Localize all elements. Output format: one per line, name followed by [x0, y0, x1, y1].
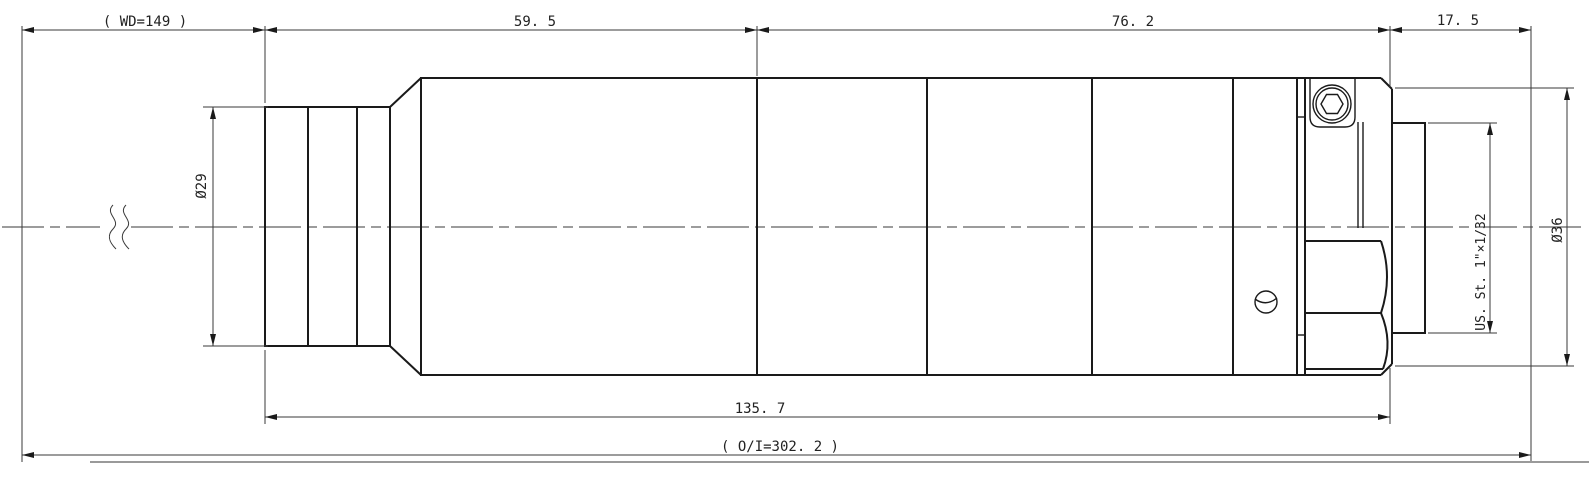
dimension-section-a: 59. 5	[265, 14, 757, 30]
dimension-flange-distance: 17. 5	[1390, 13, 1531, 30]
lens-dimension-drawing: ( WD=149 ) 59. 5 76. 2 17. 5 Ø29 Ø36	[0, 0, 1589, 482]
dimension-object-to-image: ( O/I=302. 2 )	[22, 439, 1531, 455]
taper-bottom-edge	[390, 346, 421, 375]
optical-centerline	[2, 205, 1585, 249]
body-length-label: 135. 7	[735, 401, 786, 417]
break-symbol	[109, 205, 129, 249]
mount-thread-label: US. St. 1"×1/32	[1474, 213, 1489, 330]
taper-top-edge	[390, 78, 421, 107]
hex-socket	[1321, 95, 1343, 114]
front-diameter-label: Ø29	[194, 173, 210, 198]
section-b-label: 76. 2	[1112, 14, 1154, 30]
hex-corner-arc	[1381, 313, 1388, 369]
dimension-working-distance: ( WD=149 )	[22, 14, 265, 30]
outer-diameter-label: Ø36	[1550, 217, 1566, 242]
set-screw-slot	[1255, 298, 1277, 303]
break-squiggle-left	[109, 205, 116, 249]
set-screw-head	[1255, 291, 1277, 313]
object-to-image-label: ( O/I=302. 2 )	[721, 439, 839, 455]
section-a-label: 59. 5	[514, 14, 556, 30]
dimension-body-length: 135. 7	[265, 401, 1390, 417]
set-screw	[1255, 291, 1277, 313]
mount-thread-cylinder	[1392, 123, 1425, 333]
flange-distance-label: 17. 5	[1437, 13, 1479, 29]
bolt-washer-circle	[1313, 85, 1351, 123]
hex-socket-bolt	[1310, 78, 1355, 127]
hex-flats	[1305, 241, 1388, 369]
dimension-section-b: 76. 2	[757, 14, 1390, 30]
dimension-mount-thread: US. St. 1"×1/32	[1428, 123, 1497, 333]
drawing-sheet: ( WD=149 ) 59. 5 76. 2 17. 5 Ø29 Ø36	[0, 0, 1589, 482]
working-distance-label: ( WD=149 )	[103, 14, 187, 30]
break-squiggle-right	[122, 205, 129, 249]
dimension-annotations: ( WD=149 ) 59. 5 76. 2 17. 5 Ø29 Ø36	[22, 13, 1574, 462]
hex-corner-arc	[1381, 241, 1387, 313]
clamp-slit	[1358, 122, 1363, 228]
